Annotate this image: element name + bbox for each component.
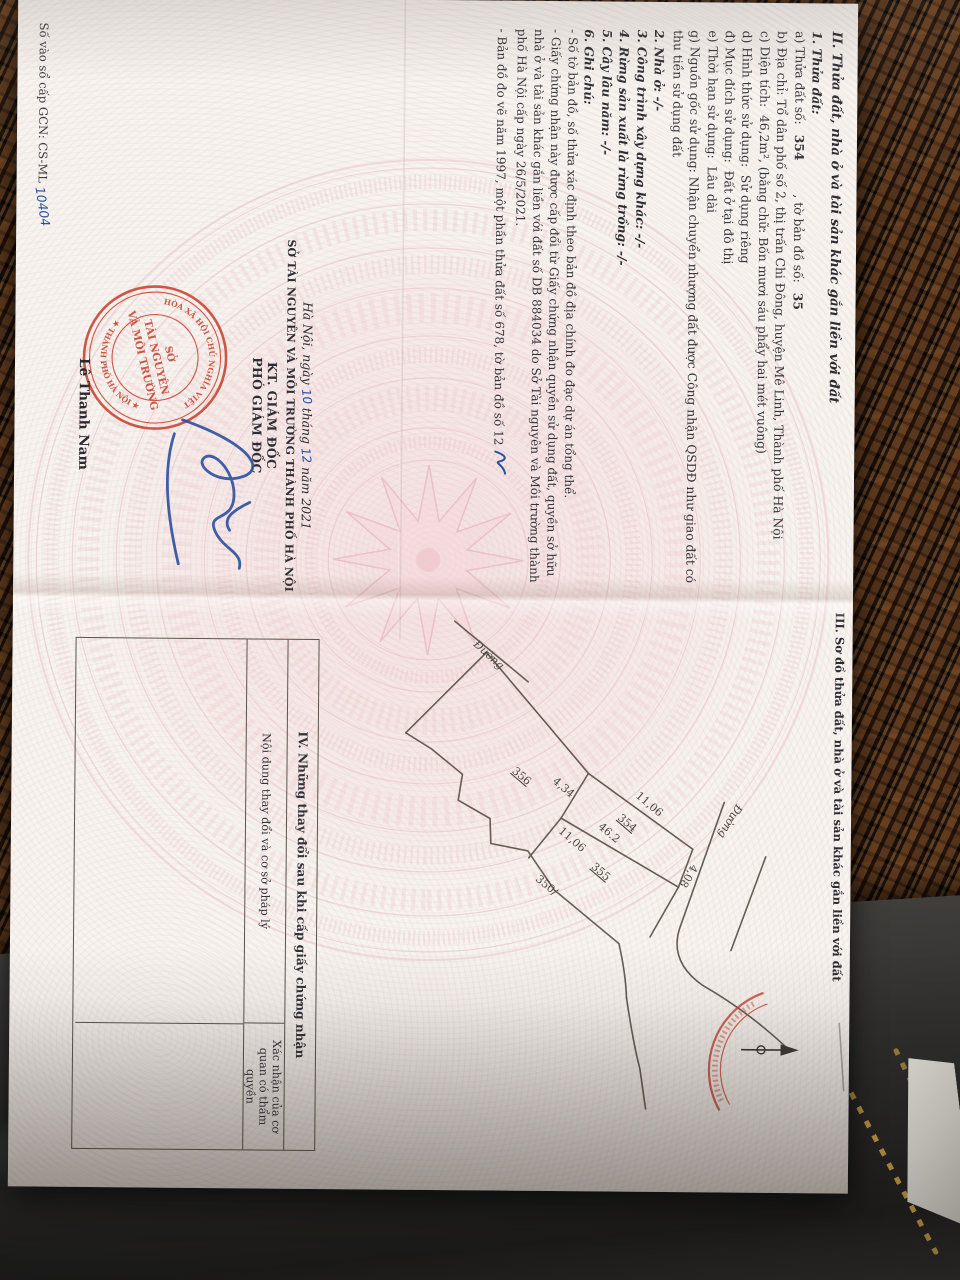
plot-356-label: 356 [509, 764, 533, 788]
road1-label: Đường [470, 637, 507, 672]
dim-4-34: 4,34 [550, 775, 577, 801]
date-place: Hà Nội, ngày [300, 302, 316, 385]
map-sheet-value: 35 [790, 293, 805, 310]
note-2: - Giấy chứng nhận này được cấp đổi từ Gi… [508, 29, 564, 583]
section-4-header-row: Nội dung thay đổi và cơ sở pháp lý Xác n… [242, 639, 287, 1149]
road2-edge1 [676, 802, 788, 1047]
handwritten-day: 10 [299, 388, 315, 405]
signature-scribble [158, 406, 274, 577]
road2-label: Đường [715, 801, 745, 840]
book-entry-label: Số vào sổ cấp GCN: CS-ML [36, 23, 51, 184]
handwritten-month: 12 [298, 447, 314, 464]
road1-edge [454, 621, 529, 682]
partial-red-stamp-arc [709, 992, 768, 1111]
parcel-number-value: 354 [792, 135, 807, 161]
book-entry-handwritten-number: 10404 [33, 186, 54, 228]
year-label: năm 2021 [299, 467, 315, 530]
book-entry-line: Số vào sổ cấp GCN: CS-ML 10404 [35, 23, 52, 227]
road2-edge2 [731, 857, 766, 951]
page-right: III. Sơ đồ thửa đất, nhà ở và tài sản kh… [8, 591, 853, 1193]
section-4-table: IV. Những thay đổi sau khi cấp giấy chứn… [71, 637, 319, 1151]
photo-scene: II. Thửa đất, nhà ở và tài sản khác gắn … [0, 0, 960, 1280]
section-4-body-row [74, 638, 246, 1149]
section-3-title: III. Sơ đồ thửa đất, nhà ở và tài sản kh… [829, 612, 847, 1052]
plot-355-right-edge [650, 887, 678, 937]
blue-pen-mark [491, 449, 509, 475]
signer-name: Lê Thanh Nam [74, 225, 93, 603]
certificate-document: II. Thửa đất, nhà ở và tài sản khác gắn … [8, 0, 858, 1194]
plot-355-left-edge [529, 818, 561, 858]
north-arrow [741, 1045, 797, 1055]
dim-11-06-b: 11,06 [556, 824, 588, 854]
page-left: II. Thửa đất, nhà ở và tài sản khác gắn … [13, 0, 858, 599]
section-4-title-row: IV. Những thay đổi sau khi cấp giấy chứn… [283, 640, 318, 1150]
dim-4-08: 4,08 [677, 862, 701, 890]
parcel-number-label: a) Thửa đất số: [792, 31, 807, 125]
note-3-text: - Bản đồ đo vẽ năm 1997, một phần thửa đ… [491, 29, 509, 446]
plot-350-label: 350/ [533, 872, 560, 898]
plot-354-left-edge [561, 773, 588, 818]
section-2-block: II. Thửa đất, nhà ở và tài sản khác gắn … [488, 28, 845, 585]
line-use-origin: g) Nguồn gốc sử dụng: Nhận chuyển nhượng… [663, 30, 703, 584]
road2-branch [626, 998, 647, 1109]
plot-354-area: 46.2 [596, 820, 623, 846]
map-sheet-label: , tờ bản đồ số: [791, 194, 806, 283]
plot-354-label: 354 [615, 811, 639, 835]
col-header-content: Nội dung thay đổi và cơ sở pháp lý [244, 639, 287, 1023]
department-name: SỞ TÀI NGUYÊN VÀ MÔI TRƯỜNG THÀNH PHỐ HÀ… [282, 227, 298, 605]
plot-354-edges [560, 818, 693, 887]
stamp-center-line1: SỞ [162, 345, 178, 364]
col-header-confirmation: Xác nhận của cơ quan có thẩm quyền [243, 1023, 284, 1149]
dim-11-06-a: 11,06 [633, 789, 665, 819]
body-cell-confirmation [74, 1023, 243, 1149]
month-label: tháng [299, 408, 314, 444]
body-cell-content [75, 638, 246, 1024]
lower-zigzag-boundary [404, 733, 629, 998]
strip-top-boundary [405, 652, 695, 850]
plot-355-label: 355 [589, 860, 613, 884]
date-line: Hà Nội, ngày 10 tháng 12 năm 2021 [298, 227, 316, 605]
